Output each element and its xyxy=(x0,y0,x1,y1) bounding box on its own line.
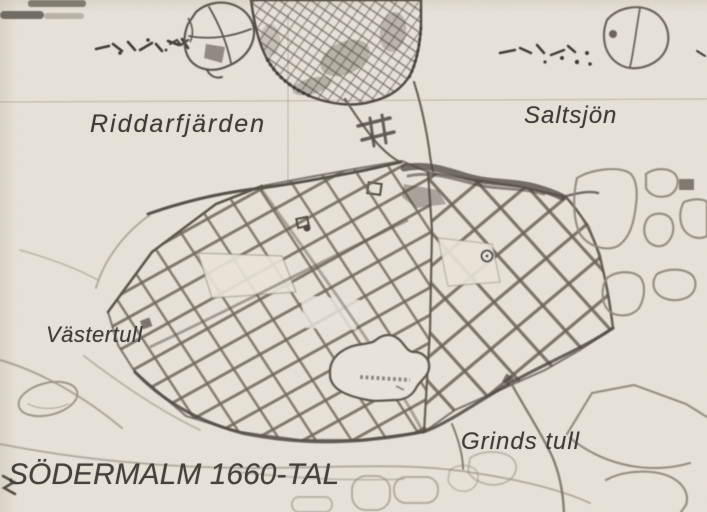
label-grinds-tull: Grinds tull xyxy=(461,428,580,456)
label-riddarfjarden: Riddarfjärden xyxy=(90,110,266,139)
edge-vignette-top xyxy=(0,0,707,12)
map-title: SÖDERMALM 1660-TAL xyxy=(8,458,339,492)
map-viewport: Riddarfjärden Saltsjön Västertull Grinds… xyxy=(0,0,707,512)
map-artwork xyxy=(0,0,707,512)
label-vastertull: Västertull xyxy=(46,322,143,348)
edge-vignette-left xyxy=(0,0,18,512)
label-saltsjon: Saltsjön xyxy=(524,102,617,130)
